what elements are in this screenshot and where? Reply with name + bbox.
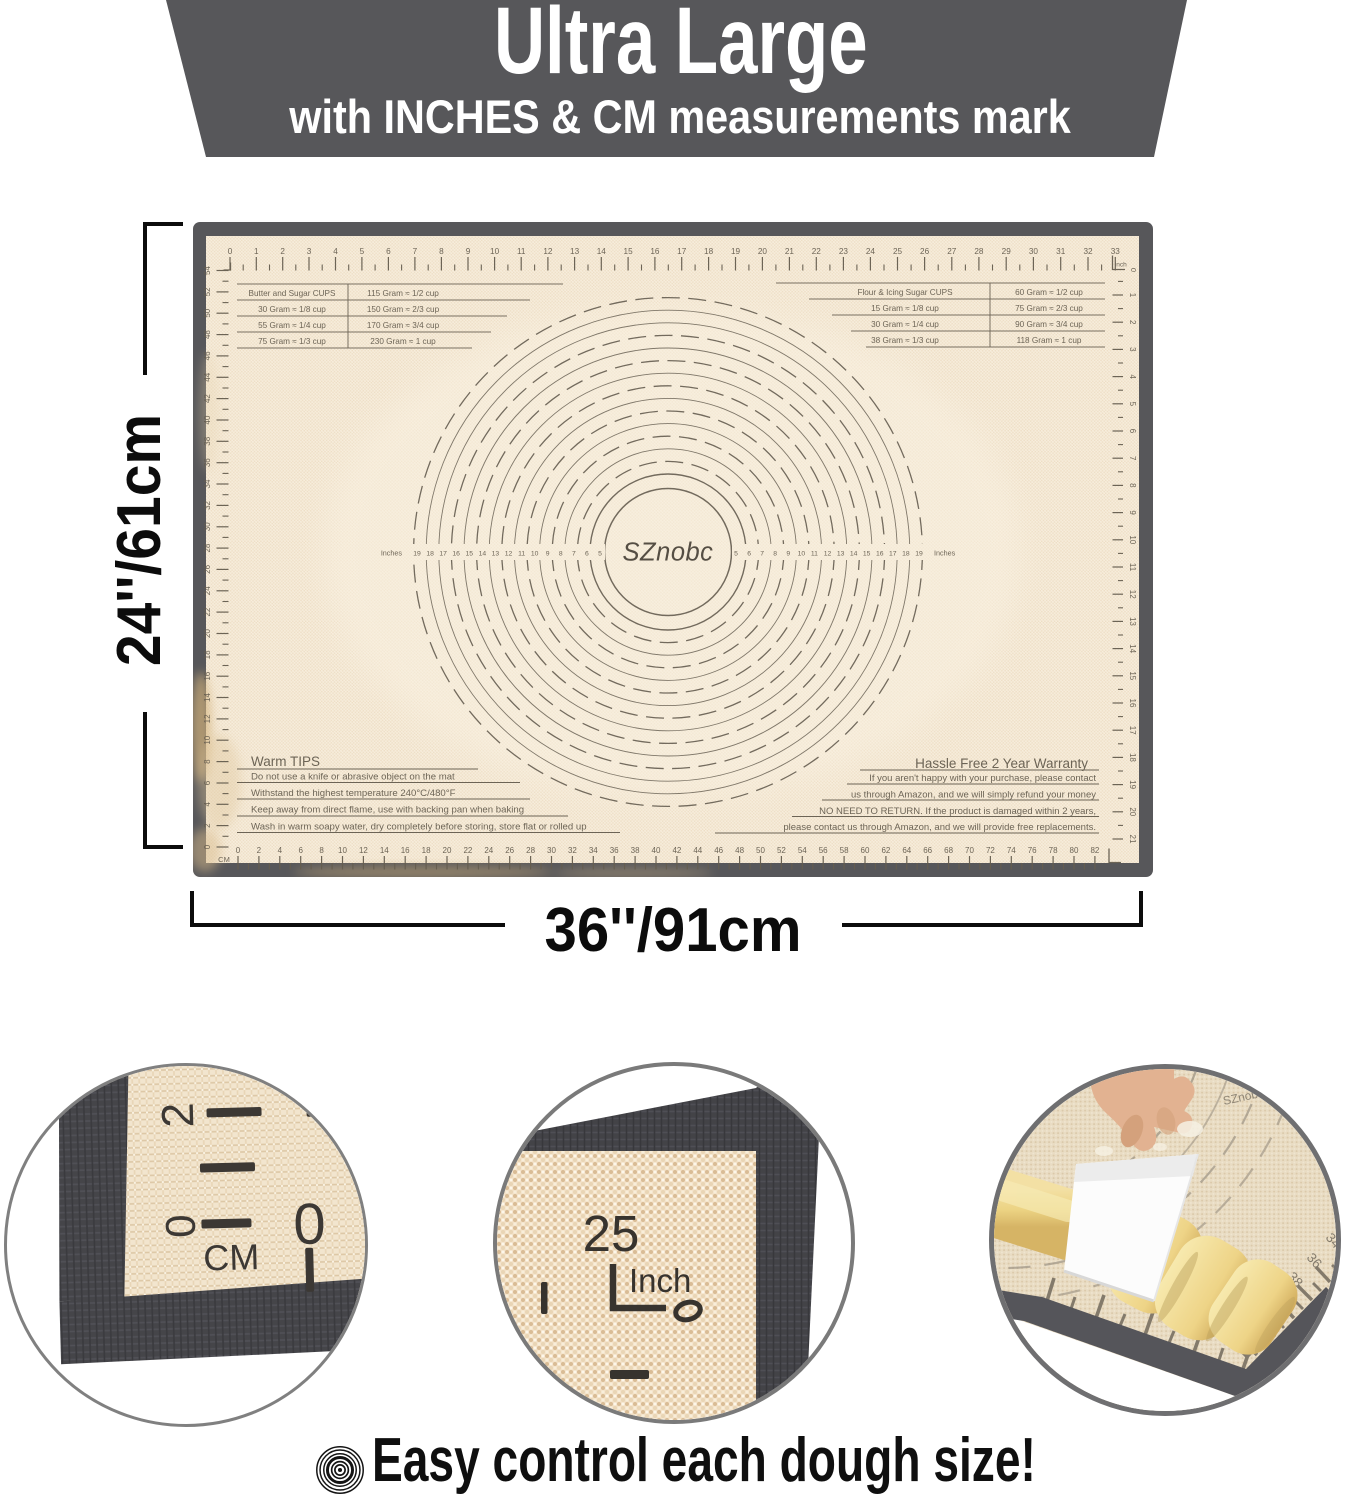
svg-text:Hassle Free 2 Year Warranty: Hassle Free 2 Year Warranty	[915, 756, 1088, 771]
svg-text:16: 16	[203, 671, 212, 680]
svg-text:34: 34	[589, 846, 598, 855]
svg-text:10: 10	[531, 551, 539, 558]
svg-text:18: 18	[1128, 753, 1137, 762]
svg-text:33: 33	[1111, 247, 1121, 256]
svg-text:15: 15	[466, 551, 474, 558]
svg-text:52: 52	[203, 287, 212, 296]
svg-text:48: 48	[735, 846, 744, 855]
svg-text:32: 32	[568, 846, 577, 855]
svg-text:68: 68	[944, 846, 953, 855]
svg-text:12: 12	[505, 551, 513, 558]
svg-text:8: 8	[319, 846, 324, 855]
svg-text:7: 7	[572, 551, 576, 558]
svg-text:19: 19	[413, 551, 421, 558]
svg-text:NO NEED TO RETURN. If the prod: NO NEED TO RETURN. If the product is dam…	[819, 806, 1096, 817]
svg-text:36: 36	[610, 846, 619, 855]
svg-text:11: 11	[517, 247, 526, 256]
svg-text:0: 0	[157, 1214, 205, 1239]
svg-text:21: 21	[785, 247, 795, 256]
svg-text:25: 25	[583, 1205, 640, 1262]
svg-text:1: 1	[1128, 293, 1137, 298]
svg-text:16: 16	[650, 247, 660, 256]
svg-text:78: 78	[1049, 846, 1058, 855]
svg-text:14: 14	[597, 247, 607, 256]
svg-text:5: 5	[1128, 402, 1137, 407]
svg-text:22: 22	[463, 846, 472, 855]
svg-text:12: 12	[359, 846, 368, 855]
svg-text:Inches: Inches	[381, 549, 403, 558]
svg-text:36: 36	[203, 458, 212, 467]
svg-text:CM: CM	[203, 1236, 260, 1278]
svg-text:18: 18	[422, 846, 431, 855]
svg-text:66: 66	[923, 846, 932, 855]
svg-text:14: 14	[203, 693, 212, 702]
svg-text:14: 14	[850, 551, 858, 558]
svg-text:11: 11	[518, 551, 525, 558]
svg-text:10: 10	[338, 846, 347, 855]
svg-text:16: 16	[401, 846, 410, 855]
svg-text:32: 32	[1083, 247, 1093, 256]
svg-text:30: 30	[1029, 247, 1039, 256]
svg-text:27: 27	[947, 247, 957, 256]
svg-text:24: 24	[203, 586, 212, 595]
svg-text:Flour & Icing Sugar CUPS: Flour & Icing Sugar CUPS	[857, 288, 953, 297]
svg-text:118 Gram ≈ 1 cup: 118 Gram ≈ 1 cup	[1017, 336, 1082, 345]
svg-text:26: 26	[203, 564, 212, 573]
svg-text:54: 54	[798, 846, 807, 855]
svg-text:44: 44	[203, 372, 212, 381]
svg-text:50: 50	[203, 308, 212, 317]
svg-text:16: 16	[876, 551, 884, 558]
svg-text:18: 18	[704, 247, 714, 256]
svg-text:42: 42	[672, 846, 681, 855]
svg-text:30: 30	[203, 522, 212, 531]
svg-text:72: 72	[986, 846, 995, 855]
svg-text:10: 10	[798, 551, 806, 558]
svg-text:230 Gram ≈ 1 cup: 230 Gram ≈ 1 cup	[370, 337, 436, 346]
svg-text:4: 4	[1128, 374, 1137, 379]
svg-text:Inches: Inches	[934, 549, 956, 558]
svg-text:Inch: Inch	[629, 1262, 691, 1299]
svg-text:9: 9	[786, 551, 790, 558]
svg-text:26: 26	[920, 247, 930, 256]
svg-text:4: 4	[203, 802, 212, 807]
svg-text:12: 12	[203, 714, 212, 723]
svg-text:5: 5	[734, 551, 738, 558]
svg-text:20: 20	[1128, 807, 1137, 816]
svg-text:10: 10	[203, 735, 212, 744]
svg-text:0: 0	[203, 844, 212, 849]
svg-text:15 Gram ≈ 1/8 cup: 15 Gram ≈ 1/8 cup	[871, 304, 939, 313]
svg-text:6: 6	[298, 846, 303, 855]
svg-text:24: 24	[866, 247, 876, 256]
svg-text:9: 9	[1128, 510, 1137, 515]
svg-text:13: 13	[1128, 617, 1137, 626]
svg-text:0: 0	[293, 1191, 327, 1257]
svg-text:22: 22	[203, 607, 212, 616]
svg-text:15: 15	[624, 247, 634, 256]
svg-text:30 Gram ≈ 1/4 cup: 30 Gram ≈ 1/4 cup	[871, 320, 939, 329]
svg-text:16: 16	[1128, 699, 1137, 708]
svg-text:0: 0	[228, 247, 233, 256]
svg-text:75 Gram ≈ 1/3 cup: 75 Gram ≈ 1/3 cup	[258, 337, 326, 346]
svg-text:38: 38	[631, 846, 640, 855]
svg-text:3: 3	[1128, 347, 1137, 352]
svg-text:13: 13	[492, 551, 500, 558]
svg-text:18: 18	[203, 650, 212, 659]
svg-text:30 Gram ≈ 1/8 cup: 30 Gram ≈ 1/8 cup	[258, 305, 326, 314]
svg-text:12: 12	[824, 551, 832, 558]
svg-text:19: 19	[1128, 780, 1137, 789]
svg-text:13: 13	[570, 247, 580, 256]
svg-text:6: 6	[386, 247, 391, 256]
svg-text:1: 1	[254, 247, 259, 256]
svg-text:us through Amazon, and we wil: us through Amazon, and we will simply re…	[851, 789, 1096, 800]
svg-text:0: 0	[1129, 268, 1138, 272]
svg-text:18: 18	[902, 551, 910, 558]
svg-text:74: 74	[1007, 846, 1016, 855]
svg-text:SZnobc: SZnobc	[623, 539, 714, 567]
svg-text:CM: CM	[218, 855, 230, 864]
svg-text:150 Gram ≈ 2/3 cup: 150 Gram ≈ 2/3 cup	[367, 305, 440, 314]
svg-text:30: 30	[547, 846, 556, 855]
svg-text:26: 26	[505, 846, 514, 855]
svg-text:32: 32	[203, 500, 212, 509]
svg-text:Do not use a knife or abrasive: Do not use a knife or abrasive object on…	[251, 772, 455, 783]
svg-text:76: 76	[1028, 846, 1037, 855]
svg-text:2: 2	[152, 1102, 204, 1128]
svg-text:19: 19	[731, 247, 741, 256]
svg-text:54: 54	[203, 266, 212, 275]
svg-text:15: 15	[863, 551, 871, 558]
svg-text:3: 3	[307, 247, 312, 256]
svg-text:Butter and Sugar CUPS: Butter and Sugar CUPS	[249, 289, 336, 298]
svg-text:10: 10	[490, 247, 500, 256]
svg-text:6: 6	[747, 551, 751, 558]
svg-text:14: 14	[479, 551, 487, 558]
svg-text:10: 10	[1128, 535, 1137, 544]
svg-text:24: 24	[484, 846, 493, 855]
svg-text:29: 29	[1002, 247, 1012, 256]
svg-text:Keep away from direct flame, u: Keep away from direct flame, use with ba…	[251, 805, 524, 816]
svg-text:50: 50	[756, 846, 765, 855]
svg-text:7: 7	[1128, 456, 1137, 461]
svg-text:18: 18	[426, 551, 434, 558]
svg-text:5: 5	[598, 551, 602, 558]
svg-text:34: 34	[203, 479, 212, 488]
svg-text:6: 6	[1128, 429, 1137, 434]
svg-text:11: 11	[811, 551, 818, 558]
svg-text:please contact us through Amaz: please contact us through Amazon, and we…	[783, 822, 1096, 833]
svg-text:5: 5	[360, 247, 365, 256]
svg-text:70: 70	[965, 846, 974, 855]
svg-text:64: 64	[902, 846, 911, 855]
svg-text:8: 8	[439, 247, 444, 256]
svg-text:60 Gram ≈ 1/2 cup: 60 Gram ≈ 1/2 cup	[1015, 288, 1083, 297]
svg-text:21: 21	[1128, 835, 1137, 844]
svg-text:38: 38	[203, 436, 212, 445]
svg-text:0: 0	[236, 846, 241, 855]
svg-text:12: 12	[543, 247, 553, 256]
svg-text:7: 7	[760, 551, 764, 558]
svg-text:Withstand the highest temperat: Withstand the highest temperature 240°C/…	[251, 788, 456, 799]
svg-text:20: 20	[758, 247, 768, 256]
svg-text:170 Gram ≈ 3/4 cup: 170 Gram ≈ 3/4 cup	[367, 321, 440, 330]
svg-text:2: 2	[280, 247, 285, 256]
svg-text:8: 8	[1128, 483, 1137, 488]
svg-text:31: 31	[1056, 247, 1066, 256]
svg-text:28: 28	[974, 247, 984, 256]
svg-text:38 Gram ≈ 1/3 cup: 38 Gram ≈ 1/3 cup	[871, 336, 939, 345]
svg-text:115 Gram ≈ 1/2 cup: 115 Gram ≈ 1/2 cup	[367, 289, 439, 298]
svg-text:4: 4	[333, 247, 338, 256]
svg-text:11: 11	[1128, 563, 1137, 572]
svg-text:12: 12	[1128, 590, 1137, 599]
svg-text:2: 2	[1128, 320, 1137, 325]
svg-text:80: 80	[1070, 846, 1079, 855]
svg-text:6: 6	[585, 551, 589, 558]
svg-text:28: 28	[526, 846, 535, 855]
svg-text:2: 2	[203, 823, 212, 828]
svg-text:56: 56	[819, 846, 828, 855]
svg-text:75 Gram ≈ 2/3 cup: 75 Gram ≈ 2/3 cup	[1015, 304, 1083, 313]
svg-text:28: 28	[203, 543, 212, 552]
svg-text:Wash in warm soapy water, dry: Wash in warm soapy water, dry completely…	[251, 821, 587, 832]
svg-text:9: 9	[466, 247, 471, 256]
svg-text:58: 58	[840, 846, 849, 855]
svg-text:7: 7	[413, 247, 418, 256]
svg-text:13: 13	[837, 551, 845, 558]
svg-text:82: 82	[1090, 846, 1099, 855]
svg-text:40: 40	[203, 415, 212, 424]
svg-text:Warm TIPS: Warm TIPS	[251, 754, 320, 769]
svg-text:62: 62	[881, 846, 890, 855]
svg-text:14: 14	[380, 846, 389, 855]
svg-text:17: 17	[439, 551, 447, 558]
svg-text:46: 46	[203, 351, 212, 360]
svg-text:If you aren't happy with your: If you aren't happy with your purchase, …	[869, 773, 1096, 784]
svg-text:25: 25	[893, 247, 903, 256]
svg-text:14: 14	[1128, 644, 1137, 653]
svg-text:17: 17	[677, 247, 687, 256]
svg-text:60: 60	[861, 846, 870, 855]
svg-text:8: 8	[203, 759, 212, 764]
svg-text:90 Gram ≈ 3/4 cup: 90 Gram ≈ 3/4 cup	[1015, 320, 1083, 329]
svg-text:16: 16	[452, 551, 460, 558]
svg-text:22: 22	[812, 247, 822, 256]
svg-text:17: 17	[1128, 726, 1137, 735]
svg-text:52: 52	[777, 846, 786, 855]
svg-text:15: 15	[1128, 671, 1137, 680]
svg-text:20: 20	[203, 629, 212, 638]
svg-text:4: 4	[278, 846, 283, 855]
svg-text:9: 9	[546, 551, 550, 558]
svg-text:44: 44	[693, 846, 702, 855]
svg-text:42: 42	[203, 394, 212, 403]
svg-text:46: 46	[714, 846, 723, 855]
svg-text:Inch: Inch	[1115, 262, 1128, 269]
svg-text:23: 23	[839, 247, 849, 256]
svg-text:2: 2	[257, 846, 262, 855]
svg-text:19: 19	[915, 551, 923, 558]
svg-text:40: 40	[652, 846, 661, 855]
svg-text:48: 48	[203, 330, 212, 339]
svg-text:8: 8	[559, 551, 563, 558]
svg-text:17: 17	[889, 551, 897, 558]
svg-text:6: 6	[203, 780, 212, 785]
svg-text:8: 8	[773, 551, 777, 558]
svg-text:55 Gram ≈ 1/4 cup: 55 Gram ≈ 1/4 cup	[258, 321, 326, 330]
svg-text:20: 20	[443, 846, 452, 855]
